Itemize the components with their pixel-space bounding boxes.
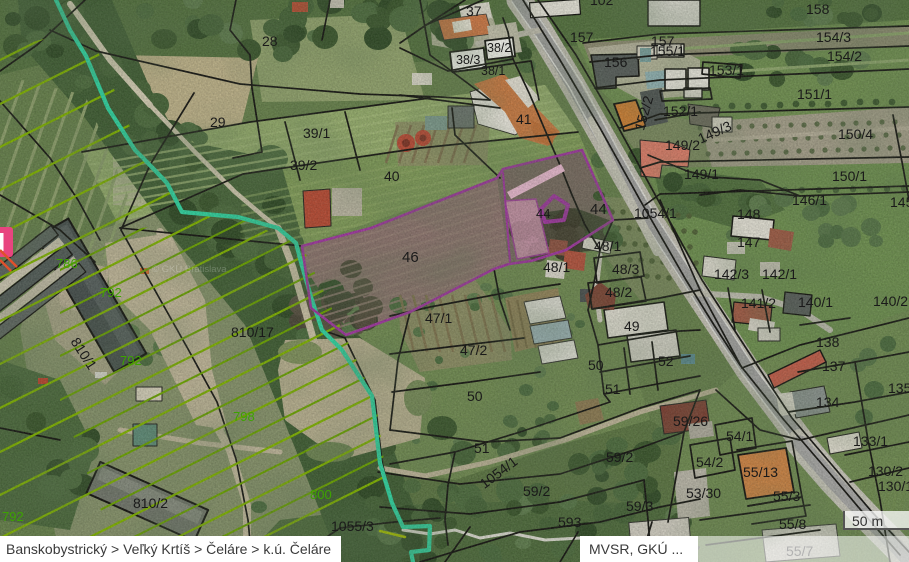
svg-text:39/2: 39/2 (290, 157, 317, 173)
svg-text:38/1: 38/1 (481, 64, 505, 78)
svg-text:55/8: 55/8 (779, 516, 806, 532)
svg-text:142/3: 142/3 (714, 266, 749, 282)
svg-text:51: 51 (605, 381, 621, 397)
svg-text:54/2: 54/2 (696, 454, 723, 470)
svg-text:59/2: 59/2 (523, 483, 550, 499)
svg-text:38/2: 38/2 (487, 41, 511, 55)
svg-text:800: 800 (310, 487, 332, 502)
svg-text:810/17: 810/17 (231, 324, 274, 340)
svg-text:49: 49 (624, 318, 640, 334)
svg-text:40: 40 (384, 168, 400, 184)
svg-text:142/1: 142/1 (762, 266, 797, 282)
svg-text:52: 52 (658, 353, 674, 369)
svg-text:156: 156 (604, 54, 628, 70)
svg-text:102: 102 (590, 0, 614, 8)
svg-text:792: 792 (100, 285, 122, 300)
svg-text:147: 147 (737, 234, 761, 250)
svg-text:47/1: 47/1 (425, 310, 452, 326)
svg-text:47/2: 47/2 (460, 342, 487, 358)
svg-text:135: 135 (888, 380, 909, 396)
svg-text:154/3: 154/3 (816, 29, 851, 45)
svg-text:55/3: 55/3 (773, 488, 800, 504)
svg-text:792: 792 (2, 509, 24, 524)
svg-text:149/1: 149/1 (684, 166, 719, 182)
svg-text:133/1: 133/1 (853, 433, 888, 449)
svg-text:150/1: 150/1 (832, 168, 867, 184)
svg-text:© GKÚ Bratislava: © GKÚ Bratislava (152, 264, 227, 275)
svg-text:51: 51 (474, 440, 490, 456)
svg-text:59/26: 59/26 (673, 413, 708, 429)
svg-text:38/3: 38/3 (456, 53, 480, 67)
svg-text:59/3: 59/3 (626, 498, 653, 514)
svg-text:29: 29 (210, 114, 226, 130)
svg-text:150/4: 150/4 (838, 126, 873, 142)
svg-text:50: 50 (467, 388, 483, 404)
svg-text:134: 134 (816, 394, 840, 410)
svg-text:140/1: 140/1 (798, 294, 833, 310)
svg-text:44: 44 (590, 201, 607, 218)
svg-text:37: 37 (466, 3, 482, 19)
svg-text:53/30: 53/30 (686, 485, 721, 501)
svg-text:55/13: 55/13 (743, 464, 778, 480)
svg-text:148: 148 (737, 206, 761, 222)
svg-text:158: 158 (806, 1, 830, 17)
svg-text:48/2: 48/2 (605, 284, 632, 300)
svg-text:810/2: 810/2 (133, 495, 168, 511)
svg-text:146/1: 146/1 (792, 192, 827, 208)
svg-text:151/1: 151/1 (797, 86, 832, 102)
svg-text:130/2: 130/2 (868, 463, 903, 479)
svg-text:54/1: 54/1 (726, 428, 753, 444)
svg-text:39/1: 39/1 (303, 125, 330, 141)
svg-text:130/1: 130/1 (878, 478, 909, 494)
svg-text:46: 46 (402, 249, 419, 266)
svg-text:MVSR, GKÚ ...: MVSR, GKÚ ... (589, 541, 683, 557)
svg-text:50: 50 (588, 357, 604, 373)
svg-text:48/1: 48/1 (543, 259, 570, 275)
svg-text:786: 786 (56, 256, 78, 271)
svg-text:798: 798 (233, 409, 255, 424)
svg-text:149/2: 149/2 (665, 137, 700, 153)
svg-text:141/2: 141/2 (741, 295, 776, 311)
svg-text:44: 44 (536, 206, 550, 221)
svg-text:48/1: 48/1 (594, 238, 621, 254)
svg-text:Banskobystrický > Veľký Krtíš: Banskobystrický > Veľký Krtíš > Čeláre >… (6, 541, 331, 557)
svg-text:152/1: 152/1 (663, 103, 698, 119)
svg-text:137: 137 (822, 358, 846, 374)
svg-text:28: 28 (262, 33, 278, 49)
svg-text:145: 145 (890, 194, 909, 210)
svg-text:140/2: 140/2 (873, 293, 908, 309)
svg-text:154/2: 154/2 (827, 48, 862, 64)
svg-text:593: 593 (558, 514, 582, 530)
svg-text:1054/1: 1054/1 (634, 205, 677, 221)
svg-text:138: 138 (816, 334, 840, 350)
svg-text:155/1: 155/1 (650, 43, 685, 59)
svg-text:153/1: 153/1 (709, 62, 744, 78)
svg-text:41: 41 (516, 111, 532, 127)
svg-text:157: 157 (570, 29, 594, 45)
svg-text:1055/3: 1055/3 (331, 518, 374, 534)
svg-text:48/3: 48/3 (612, 261, 639, 277)
svg-text:792: 792 (120, 353, 142, 368)
svg-text:50 m: 50 m (852, 513, 883, 529)
svg-text:59/2: 59/2 (606, 449, 633, 465)
